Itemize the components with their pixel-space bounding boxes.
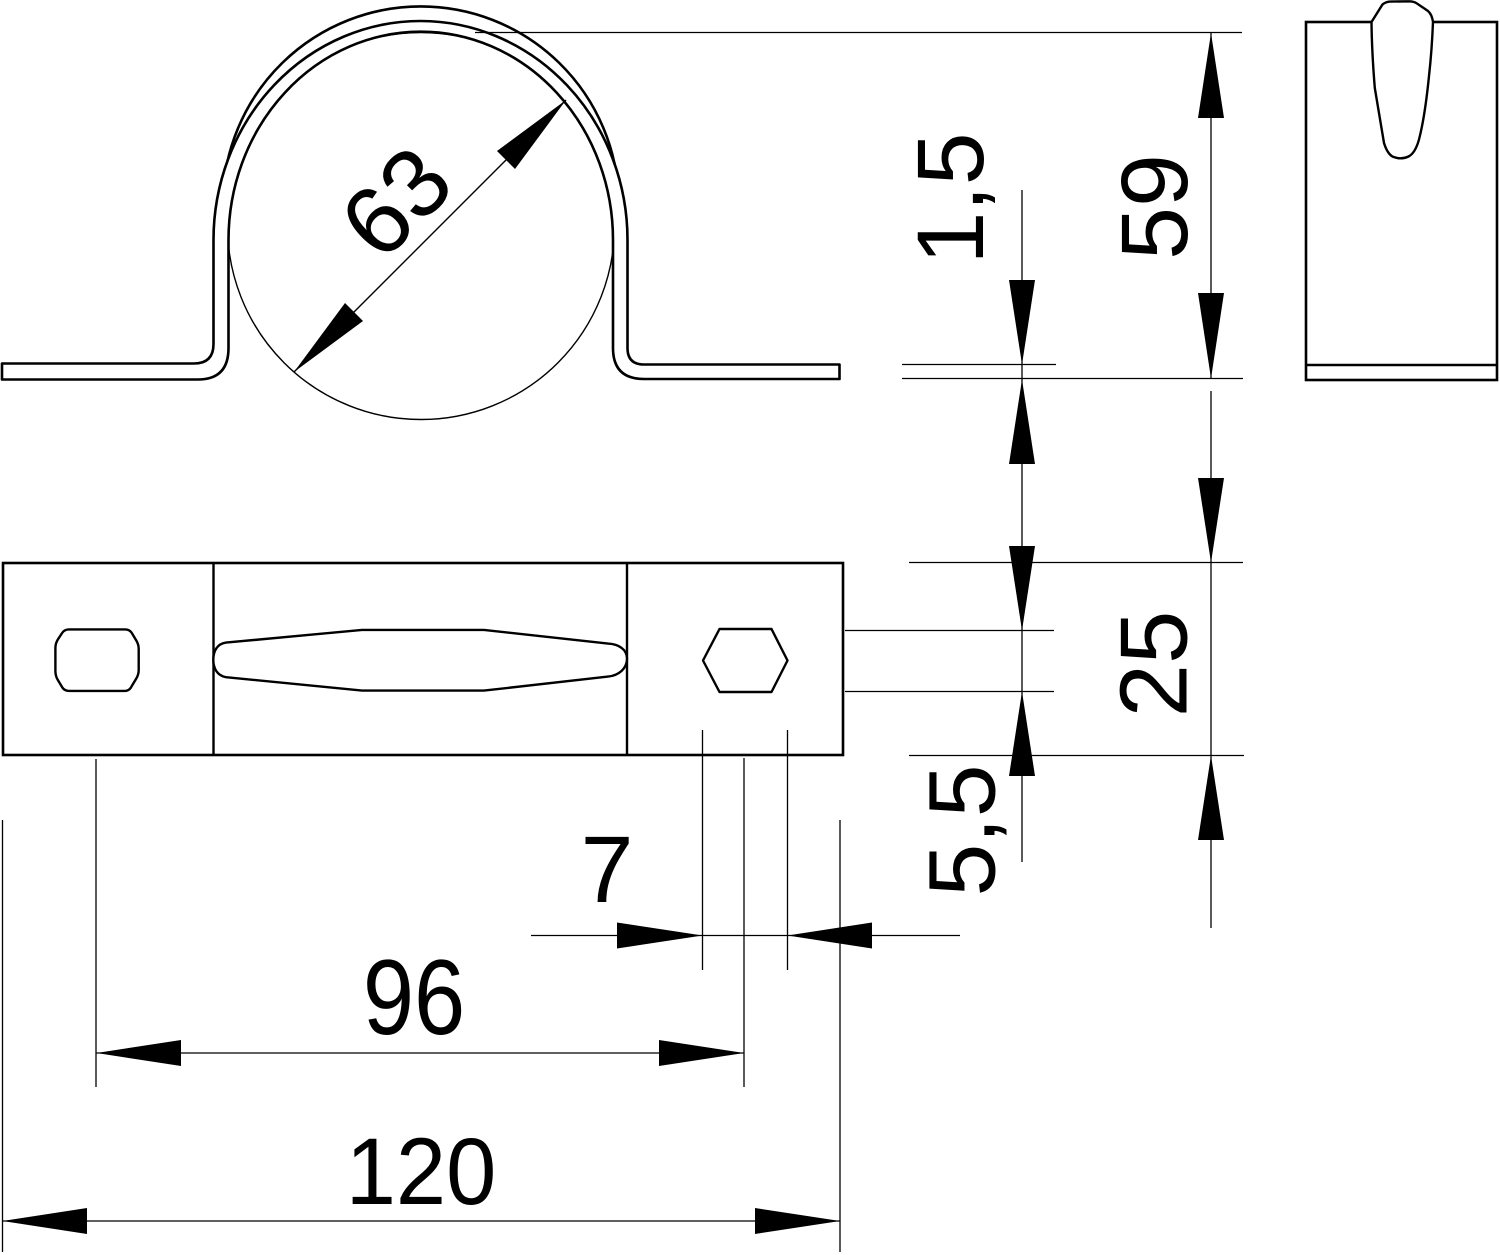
svg-text:96: 96	[363, 938, 465, 1057]
svg-text:1,5: 1,5	[898, 132, 1004, 264]
svg-text:5,5: 5,5	[910, 764, 1016, 896]
svg-text:59: 59	[1102, 154, 1208, 260]
svg-text:120: 120	[346, 1118, 497, 1225]
svg-text:25: 25	[1101, 611, 1208, 718]
svg-text:7: 7	[581, 817, 634, 923]
